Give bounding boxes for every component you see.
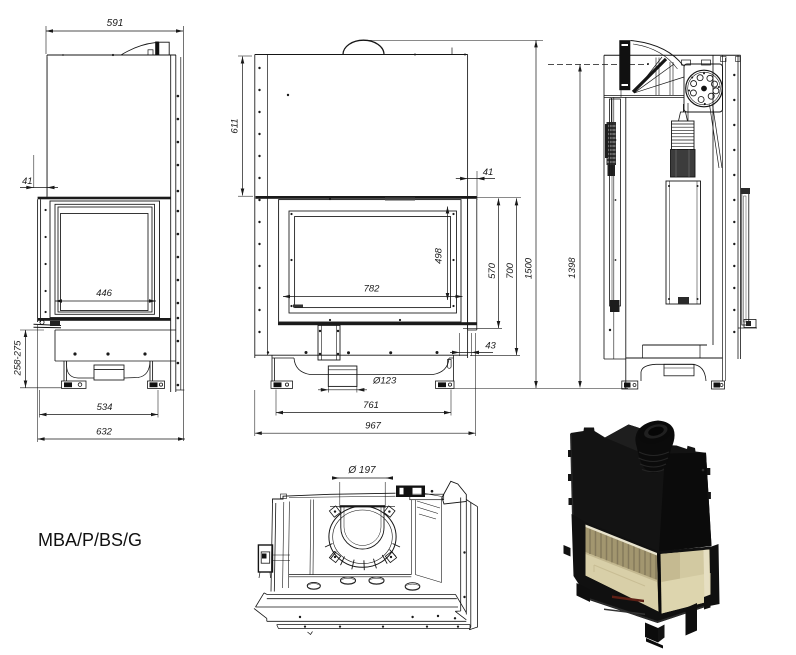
svg-text:Ø123: Ø123 (372, 376, 397, 387)
svg-text:258-275: 258-275 (13, 340, 24, 377)
svg-text:534: 534 (97, 402, 113, 413)
svg-text:41: 41 (483, 167, 494, 178)
svg-text:41: 41 (22, 176, 33, 187)
svg-text:967: 967 (365, 421, 382, 432)
svg-text:611: 611 (230, 118, 241, 133)
svg-text:591: 591 (107, 18, 124, 29)
svg-text:MBA/P/BS/G: MBA/P/BS/G (38, 530, 142, 550)
svg-text:498: 498 (434, 247, 445, 264)
svg-text:1500: 1500 (524, 257, 535, 279)
svg-text:700: 700 (505, 262, 516, 279)
svg-text:782: 782 (364, 284, 381, 295)
svg-text:632: 632 (96, 427, 113, 438)
svg-text:Ø 197: Ø 197 (347, 465, 376, 476)
svg-text:43: 43 (485, 341, 496, 352)
svg-text:570: 570 (487, 262, 498, 279)
svg-text:761: 761 (363, 400, 379, 411)
svg-text:1398: 1398 (567, 257, 578, 279)
svg-text:446: 446 (96, 288, 113, 299)
